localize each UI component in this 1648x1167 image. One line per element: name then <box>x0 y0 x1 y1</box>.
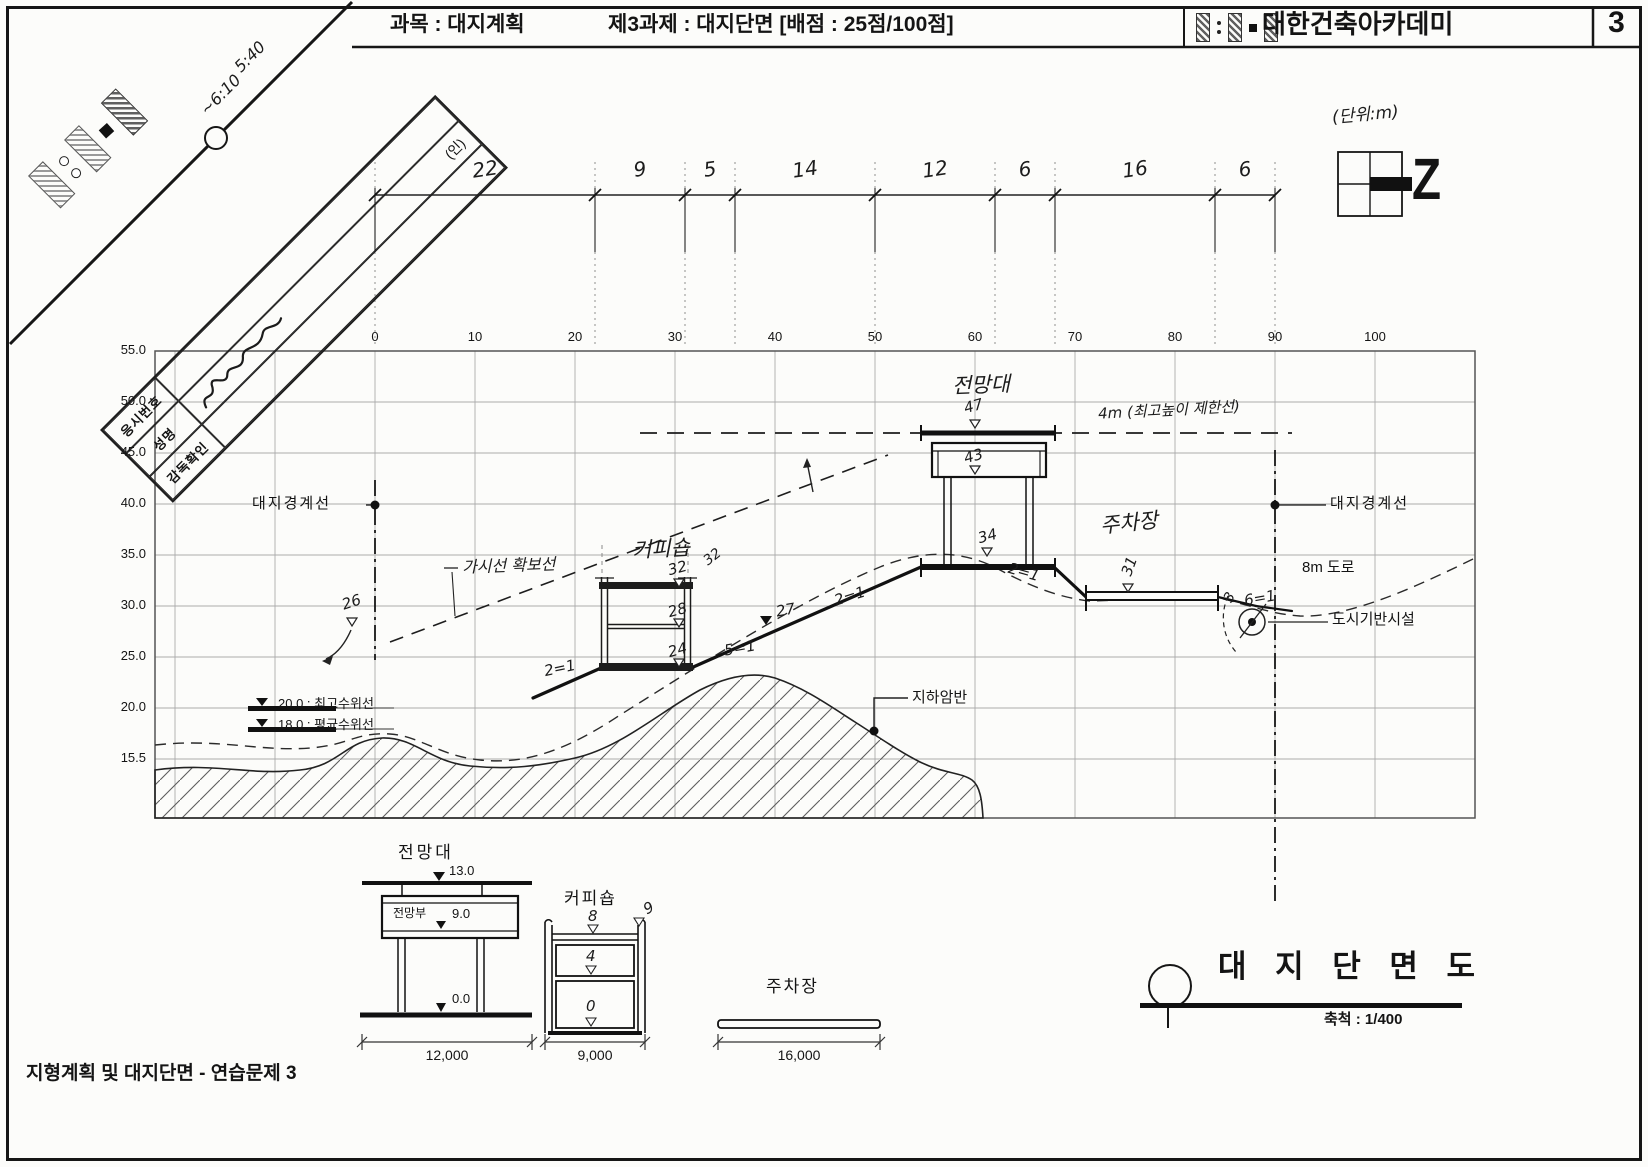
sheet-number: 3 <box>1593 6 1640 39</box>
observatory-label: 전망대 <box>952 373 1011 398</box>
logo-bar-icon <box>1196 13 1210 42</box>
x-axis-label: 80 <box>1155 330 1195 344</box>
drawing-scale: 축척 : 1/400 <box>1324 1012 1402 1029</box>
logo-dots-icon <box>1217 21 1221 34</box>
dimension-line <box>369 162 1281 348</box>
x-axis-label: 60 <box>955 330 995 344</box>
sight-line-label: 가시선 확보선 <box>462 555 556 576</box>
obs-deck-label: 전망부 <box>393 907 426 920</box>
boundary-right-label: 대지경계선 <box>1330 496 1409 513</box>
site-section-sheet: 과목 : 대지계획 제3과제 : 대지단면 [배점 : 25점/100점] 대한… <box>0 0 1648 1167</box>
x-axis-label: 10 <box>455 330 495 344</box>
bench-marker <box>760 616 772 625</box>
obs-mid-level: 9.0 <box>452 907 470 921</box>
park-width-dim: 16,000 <box>760 1048 838 1063</box>
footer-caption: 지형계획 및 대지단면 - 연습문제 3 <box>26 1064 297 1085</box>
obs-base-level: 0.0 <box>452 992 470 1006</box>
x-axis-label: 30 <box>655 330 695 344</box>
y-axis-label: 15.5 <box>98 751 146 765</box>
obs-detail-title: 전망대 <box>398 844 454 863</box>
cof-mid-level: 4 <box>586 948 596 965</box>
north-letter: Z <box>1412 148 1441 212</box>
logo-square-icon <box>1249 24 1257 32</box>
x-axis-label: 70 <box>1055 330 1095 344</box>
infrastructure-label: 도시기반시설 <box>1332 612 1415 629</box>
road-label: 8m 도로 <box>1302 560 1355 577</box>
x-axis-label: 50 <box>855 330 895 344</box>
boundary-lines <box>366 450 1326 903</box>
obs-width-dim: 12,000 <box>407 1048 487 1063</box>
logo-dots-icon <box>57 154 83 180</box>
cof-roof-level: 8 <box>588 908 598 925</box>
x-axis-label: 0 <box>355 330 395 344</box>
header-subject: 과목 : 대지계획 <box>390 13 525 36</box>
x-axis-label: 90 <box>1255 330 1295 344</box>
cof-base-level: 0 <box>586 998 596 1015</box>
coffee-detail <box>540 918 650 1050</box>
max-water-label: 20.0 : 최고수위선 <box>278 697 374 711</box>
x-axis-label: 20 <box>555 330 595 344</box>
academy-name: 대한건축아카데미 <box>1262 10 1453 39</box>
cof-width-dim: 9,000 <box>557 1048 633 1063</box>
parking-detail <box>713 1020 885 1050</box>
y-axis-label: 45.0 <box>98 445 146 459</box>
drawing-title: 대 지 단 면 도 <box>1218 950 1485 984</box>
park-detail-title: 주차장 <box>766 978 819 997</box>
seal-label: (인) <box>440 133 470 163</box>
header-task: 제3과제 : 대지단면 [배점 : 25점/100점] <box>608 13 954 36</box>
cof-detail-title: 커피숍 <box>564 890 617 909</box>
parking-platform <box>1086 584 1218 611</box>
boundary-left-label: 대지경계선 <box>252 496 331 513</box>
observatory-section <box>921 420 1055 577</box>
x-axis-label: 100 <box>1355 330 1395 344</box>
logo-square-icon <box>98 123 114 139</box>
y-axis-label: 30.0 <box>98 598 146 612</box>
observatory-detail <box>357 872 537 1050</box>
boundary-ground-marker <box>322 618 357 665</box>
logo-bar-icon <box>1228 13 1242 42</box>
elev-annotation: 27 <box>775 600 797 620</box>
y-axis-label: 40.0 <box>98 496 146 510</box>
bedrock-label: 지하암반 <box>912 690 967 707</box>
y-axis-label: 55.0 <box>98 343 146 357</box>
north-symbol <box>1338 152 1412 216</box>
avg-water-label: 18.0 : 평균수위선 <box>278 718 374 732</box>
x-axis-label: 40 <box>755 330 795 344</box>
y-axis-label: 50.0 <box>98 394 146 408</box>
y-axis-label: 35.0 <box>98 547 146 561</box>
obs-top-level: 13.0 <box>449 864 474 878</box>
y-axis-label: 20.0 <box>98 700 146 714</box>
y-axis-label: 25.0 <box>98 649 146 663</box>
